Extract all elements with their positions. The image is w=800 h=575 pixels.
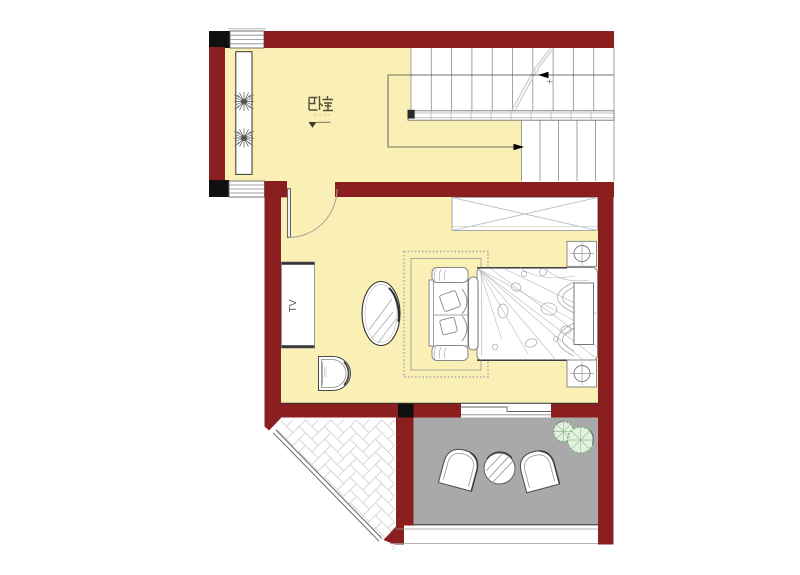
svg-text:TV: TV bbox=[288, 299, 299, 312]
